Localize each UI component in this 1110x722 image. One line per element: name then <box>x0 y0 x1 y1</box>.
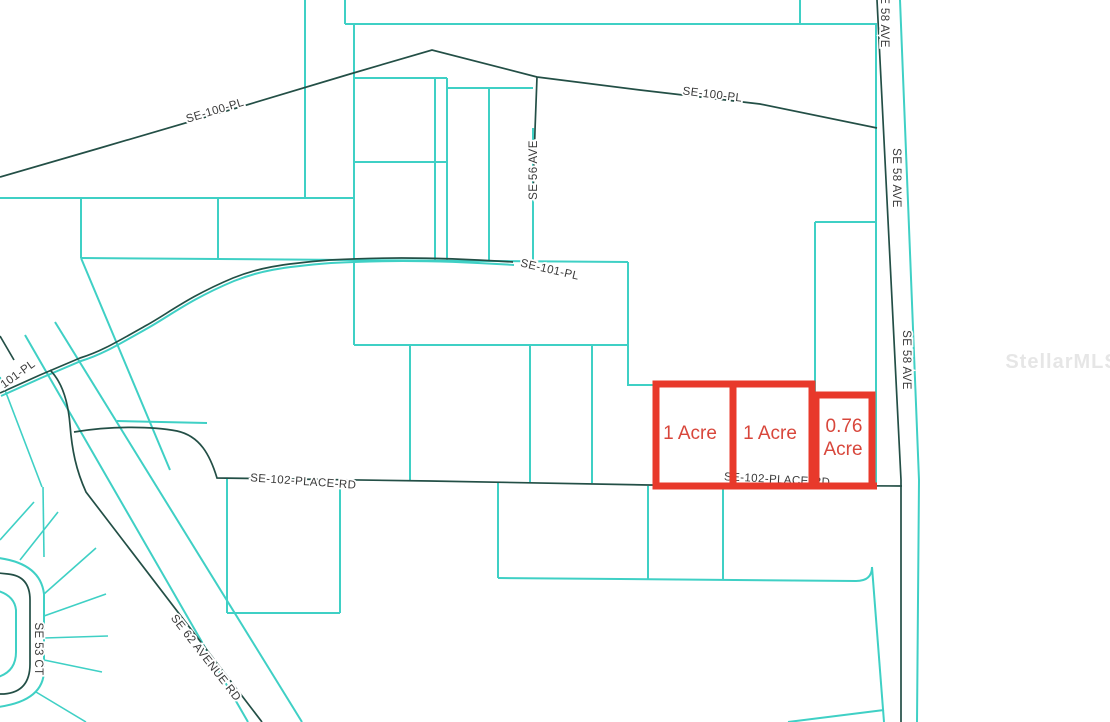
road-label-se-58-ave-lower: SE 58 AVE <box>900 330 912 390</box>
road-label-se-56-ave: SE 56 AVE <box>528 140 540 200</box>
road-labels: SE-100-PL SE-100-PL SE 56 AVE SE 58 AVE … <box>0 0 912 704</box>
road-label-se-53-ct: SE 53 CT <box>32 622 44 675</box>
map-canvas: SE-100-PL SE-100-PL SE 56 AVE SE 58 AVE … <box>0 0 1110 722</box>
road-label-se-102-place-rd-west: SE-102-PLACE-RD <box>250 472 357 491</box>
road-label-se-100-pl-west: SE-100-PL <box>185 97 246 126</box>
highlighted-parcels: 1 Acre 1 Acre 0.76 Acre <box>656 384 877 486</box>
stellar-mls-watermark: StellarMLS <box>1005 351 1110 373</box>
road-label-se-100-pl-east: SE-100-PL <box>682 85 743 104</box>
road-edge-segment <box>0 336 14 360</box>
road-label-se-58-ave-mid: SE 58 AVE <box>890 148 902 208</box>
road-se-101-pl <box>0 258 513 393</box>
road-se-100-pl <box>0 50 877 177</box>
road-lines <box>0 0 902 722</box>
acre-label-west: 1 Acre <box>663 423 717 444</box>
road-label-se-101-pl-west-partial: 101-PL <box>0 358 38 391</box>
road-label-se-62-avenue-rd: SE 62 AVENUE RD <box>168 613 243 704</box>
acre-label-east-value: 0.76 <box>826 416 863 437</box>
road-label-se-58-ave-top: SE 58 AVE <box>878 0 890 48</box>
road-se-58-ave <box>877 0 901 722</box>
acre-label-middle: 1 Acre <box>743 423 797 444</box>
acre-label-east-unit: Acre <box>823 439 862 460</box>
parcel-map: SE-100-PL SE-100-PL SE 56 AVE SE 58 AVE … <box>0 0 1110 722</box>
